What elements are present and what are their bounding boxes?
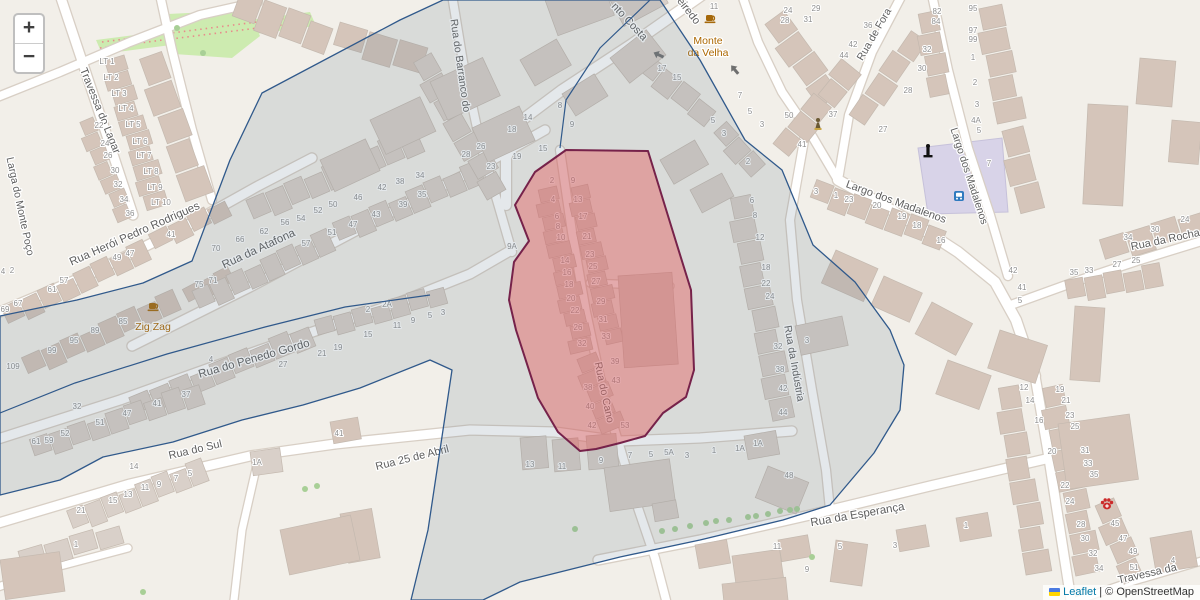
poi-label: Monte	[693, 35, 722, 47]
house-number: 30	[1151, 225, 1160, 234]
house-number: LT 10	[151, 198, 171, 207]
house-number: 25	[1132, 256, 1141, 265]
house-number: 49	[1129, 547, 1138, 556]
house-number: 41	[1018, 283, 1027, 292]
house-number: 49	[113, 253, 122, 262]
paw-toe	[1101, 501, 1104, 504]
building	[1006, 456, 1030, 481]
ukraine-flag-icon	[1049, 588, 1060, 596]
house-number: 16	[1035, 416, 1044, 425]
house-number: 5	[838, 542, 843, 551]
house-number: LT 4	[118, 104, 134, 113]
house-number: LT 9	[147, 183, 163, 192]
building	[695, 539, 731, 568]
house-number: 30	[1081, 534, 1090, 543]
paw-toe	[1107, 498, 1110, 501]
house-number: 3	[814, 187, 819, 196]
house-number: 11	[141, 483, 150, 492]
house-number: 37	[829, 110, 838, 119]
house-number: 36	[864, 21, 873, 30]
house-number: 13	[124, 490, 133, 499]
house-number: 18	[913, 221, 922, 230]
house-number: 99	[969, 35, 978, 44]
zoom-control: + −	[13, 13, 45, 74]
building	[1010, 479, 1039, 505]
house-number: LT 5	[125, 120, 141, 129]
house-number: 67	[14, 299, 23, 308]
house-number: 1	[74, 540, 79, 549]
house-number: 20	[1048, 447, 1057, 456]
house-number: 45	[1111, 519, 1120, 528]
house-number: 12	[1020, 383, 1029, 392]
building	[1084, 275, 1106, 301]
monument-shaft	[926, 147, 929, 155]
house-number: 32	[1089, 549, 1098, 558]
statue-head	[816, 118, 820, 122]
building	[998, 385, 1022, 410]
house-number: 30	[111, 166, 120, 175]
building	[1017, 502, 1044, 528]
house-number: 41	[798, 140, 807, 149]
house-number: 19	[898, 212, 907, 221]
house-number: 31	[1081, 446, 1090, 455]
building	[1065, 277, 1086, 299]
tree-icon	[200, 50, 206, 56]
zoom-in-button[interactable]: +	[15, 15, 43, 44]
house-number: 4A	[971, 116, 981, 125]
building	[997, 409, 1025, 435]
building	[0, 552, 65, 600]
attribution-bar: Leaflet | © OpenStreetMap	[1043, 585, 1200, 600]
house-number: 1	[834, 191, 839, 200]
house-number: 23	[845, 195, 854, 204]
house-number: 23	[1066, 411, 1075, 420]
building	[1168, 120, 1200, 164]
house-number: 7	[987, 159, 992, 168]
house-number: 28	[781, 16, 790, 25]
house-number: 4	[1171, 556, 1176, 565]
building	[979, 4, 1006, 30]
house-number: 5	[1018, 296, 1023, 305]
house-number: LT 1	[99, 57, 115, 66]
house-number: 9	[157, 480, 162, 489]
house-number: 30	[918, 64, 927, 73]
house-number: 2	[973, 78, 978, 87]
cafe-cup	[706, 15, 713, 21]
house-number: 4	[1, 267, 6, 276]
house-number: 33	[1084, 459, 1093, 468]
building	[1136, 58, 1176, 107]
house-number: 7	[738, 91, 743, 100]
house-number: 84	[932, 17, 941, 26]
house-number: 32	[923, 45, 932, 54]
bus-stop-icon	[954, 191, 964, 201]
building	[956, 512, 992, 541]
bus-wheel	[960, 198, 962, 200]
house-number: 27	[1113, 260, 1122, 269]
building	[1018, 526, 1043, 551]
paw-toe	[1110, 501, 1113, 504]
house-number: 15	[109, 496, 118, 505]
building	[1070, 306, 1105, 382]
house-number: 27	[879, 125, 888, 134]
house-number: 5	[977, 126, 982, 135]
osm-copyright-link[interactable]: © OpenStreetMap	[1105, 586, 1194, 598]
building	[1083, 104, 1128, 206]
house-number: 1	[971, 53, 976, 62]
building	[926, 74, 949, 97]
leaflet-link[interactable]: Leaflet	[1063, 586, 1096, 598]
building	[924, 53, 949, 76]
house-number: 5	[748, 107, 753, 116]
house-number: 36	[126, 209, 135, 218]
house-number: 5	[188, 469, 193, 478]
tree-icon	[314, 483, 320, 489]
house-number: LT 6	[132, 137, 148, 146]
building	[1022, 549, 1051, 575]
house-number: 14	[1026, 396, 1035, 405]
statue-base	[815, 128, 822, 130]
building	[989, 75, 1017, 101]
house-number: 97	[969, 26, 978, 35]
house-number: 1	[964, 521, 969, 530]
tree-icon	[174, 25, 180, 31]
house-number: 26	[104, 151, 113, 160]
house-number: 29	[812, 4, 821, 13]
house-number: 24	[784, 6, 793, 15]
house-number: 41	[335, 429, 344, 438]
house-number: 69	[1, 305, 10, 314]
house-number: 21	[77, 506, 86, 515]
house-number: 25	[1071, 422, 1080, 431]
house-number: 42	[849, 40, 858, 49]
map-canvas[interactable]: Travessa do LagarLarga do Monte PoçoRua …	[0, 0, 1200, 600]
bus-window	[956, 193, 962, 197]
house-number: 3	[975, 100, 980, 109]
monument-base	[924, 155, 933, 157]
cafe-icon	[705, 15, 716, 23]
building	[1141, 263, 1163, 289]
building	[1103, 270, 1125, 294]
house-number: 24	[1181, 215, 1190, 224]
paw-cross	[1105, 505, 1109, 506]
house-number: 47	[126, 249, 135, 258]
house-number: 19	[1056, 385, 1065, 394]
house-number: 34	[1124, 233, 1133, 242]
house-number: LT 8	[143, 167, 159, 176]
house-number: 22	[95, 121, 104, 130]
house-number: 1A	[252, 458, 262, 467]
building	[1123, 270, 1144, 292]
cafe-saucer	[705, 22, 716, 24]
tree-icon	[302, 486, 308, 492]
house-number: 28	[1077, 520, 1086, 529]
paw-toe	[1104, 498, 1107, 501]
house-number: 41	[167, 230, 176, 239]
house-number: 35	[1090, 470, 1099, 479]
house-number: LT 2	[103, 73, 119, 82]
tree-icon	[809, 554, 815, 560]
house-number: 33	[1085, 266, 1094, 275]
building	[778, 535, 811, 562]
house-number: 95	[969, 4, 978, 13]
house-number: 14	[130, 462, 139, 471]
tree-icon	[140, 589, 146, 595]
bus-wheel	[956, 198, 958, 200]
house-number: 22	[1061, 481, 1070, 490]
house-number: 82	[933, 7, 942, 16]
house-number: 24	[101, 139, 110, 148]
house-number: 16	[937, 236, 946, 245]
house-number: 32	[114, 180, 123, 189]
house-number: 31	[804, 15, 813, 24]
house-number: LT 7	[136, 151, 152, 160]
map-svg: Travessa do LagarLarga do Monte PoçoRua …	[0, 0, 1200, 600]
house-number: 35	[1070, 268, 1079, 277]
house-number: 9	[805, 565, 810, 574]
house-number: 50	[785, 111, 794, 120]
building	[1004, 432, 1030, 457]
house-number: 51	[1130, 563, 1139, 572]
house-number: 24	[1066, 497, 1075, 506]
house-number: 20	[873, 201, 882, 210]
house-number: 3	[760, 120, 765, 129]
house-number: 44	[840, 51, 849, 60]
house-number: 47	[1119, 534, 1128, 543]
house-number: 34	[120, 195, 129, 204]
house-number: 3	[893, 541, 898, 550]
house-number: 2	[10, 266, 15, 275]
house-number: 57	[60, 276, 69, 285]
house-number: 61	[48, 285, 57, 294]
building	[830, 540, 868, 586]
house-number: 34	[1095, 564, 1104, 573]
house-number: 28	[904, 86, 913, 95]
house-number: 11	[773, 542, 782, 551]
zoom-out-button[interactable]: −	[15, 44, 43, 72]
building	[896, 525, 929, 552]
house-number: 42	[1009, 266, 1018, 275]
house-number: 7	[174, 474, 179, 483]
house-number: LT 3	[111, 89, 127, 98]
attribution-separator: |	[1096, 586, 1105, 598]
house-number: 21	[1062, 396, 1071, 405]
house-number: 11	[710, 2, 719, 11]
